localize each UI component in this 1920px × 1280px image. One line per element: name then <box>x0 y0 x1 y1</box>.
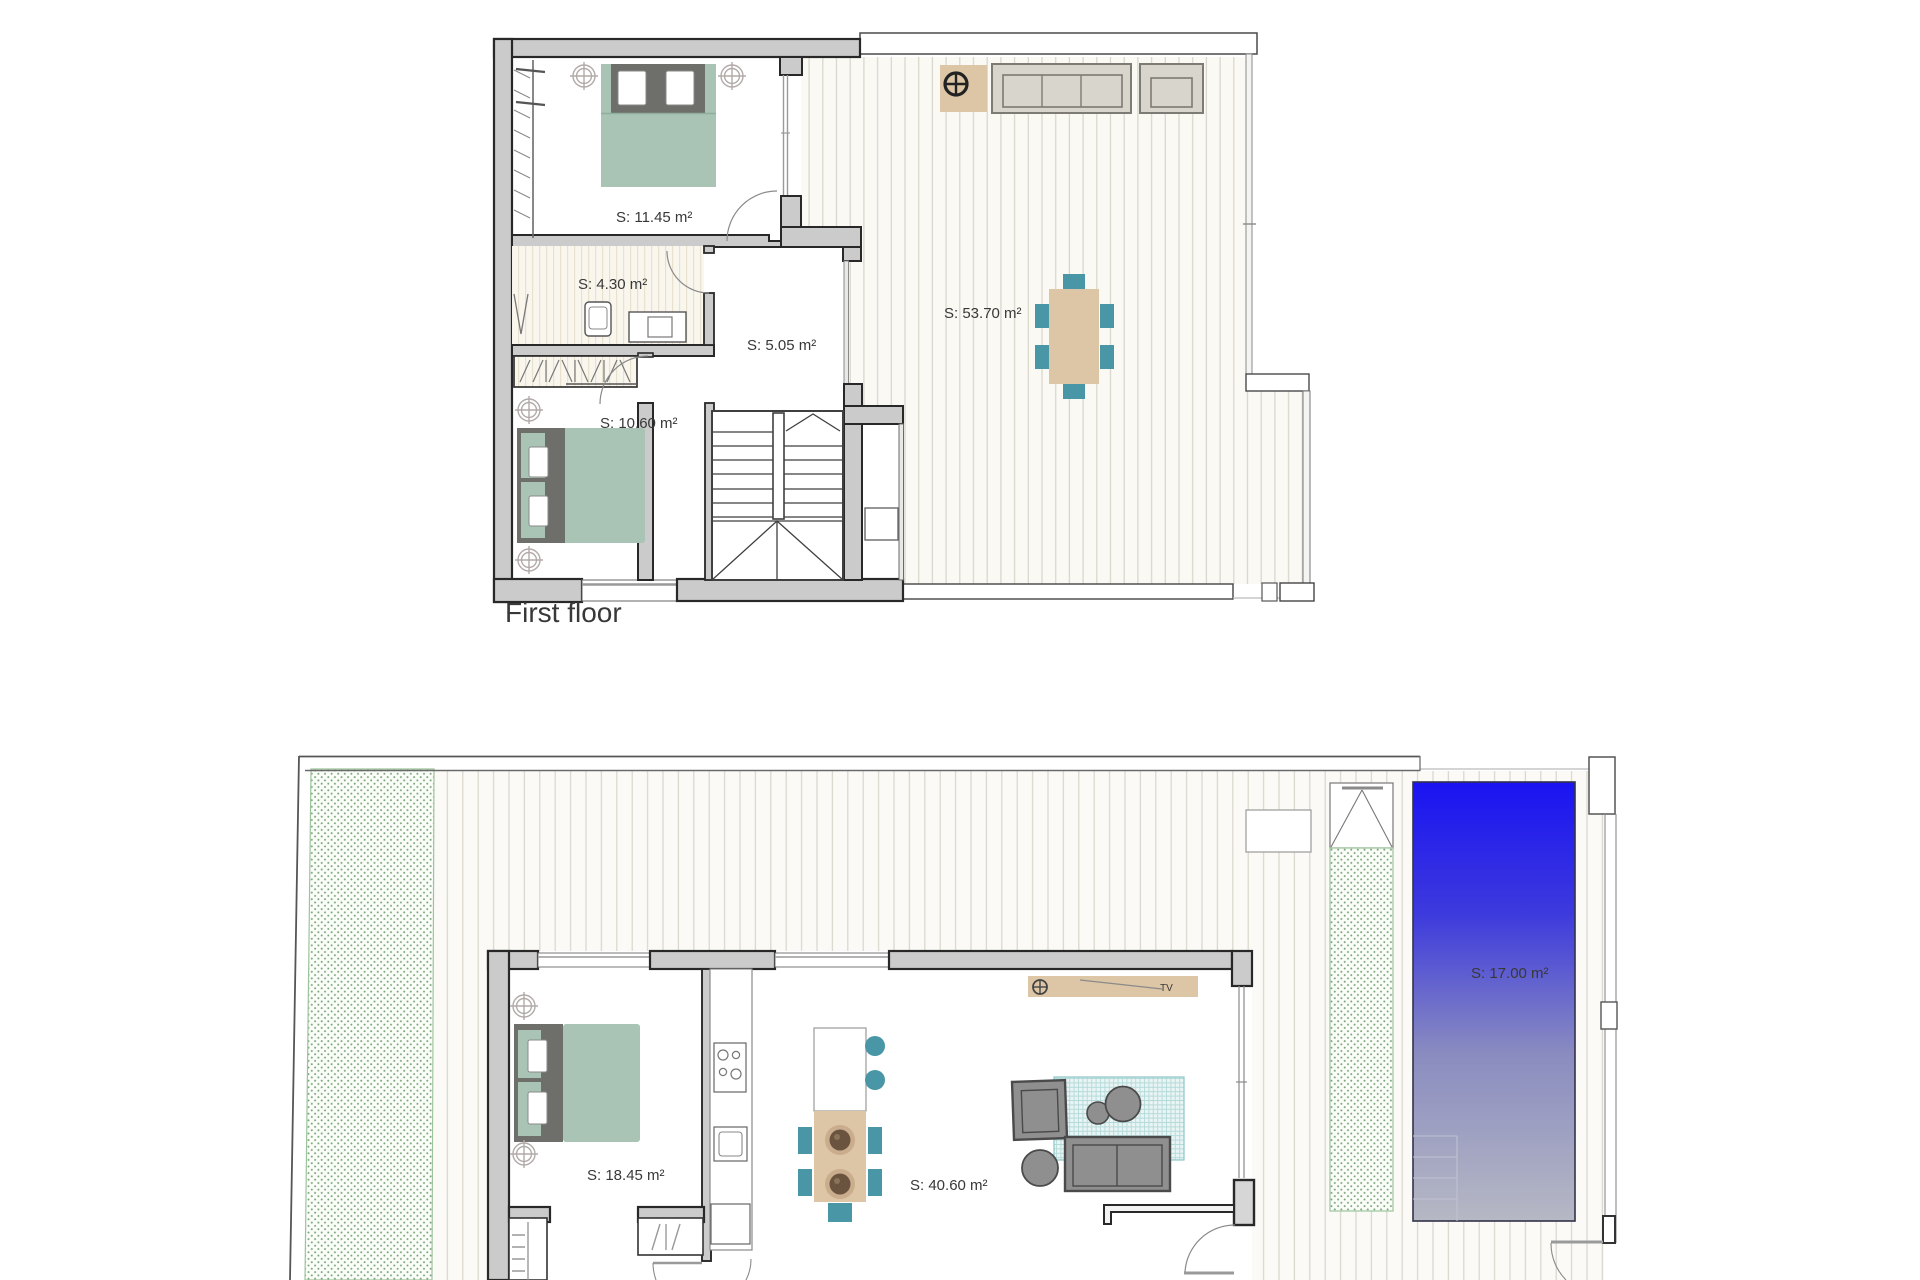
svg-text:S: 5.05 m²: S: 5.05 m² <box>747 337 816 354</box>
svg-text:TV: TV <box>1160 983 1173 994</box>
svg-text:S: 40.60 m²: S: 40.60 m² <box>910 1177 988 1194</box>
svg-text:S: 53.70 m²: S: 53.70 m² <box>944 305 1022 322</box>
svg-text:S: 18.45 m²: S: 18.45 m² <box>587 1167 665 1184</box>
svg-text:S: 11.45 m²: S: 11.45 m² <box>616 209 692 226</box>
svg-text:S: 17.00 m²: S: 17.00 m² <box>1471 965 1549 982</box>
svg-text:S: 4.30 m²: S: 4.30 m² <box>578 276 647 293</box>
svg-text:First floor: First floor <box>505 597 622 628</box>
svg-text:S: 10.60 m²: S: 10.60 m² <box>600 415 678 432</box>
